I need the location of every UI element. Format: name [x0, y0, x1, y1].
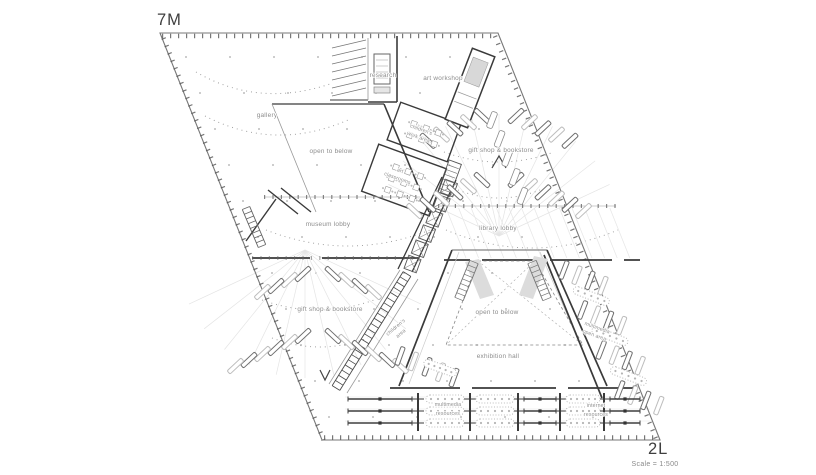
room-label-library-lobby: library lobby	[479, 225, 517, 232]
floor-plan-page: 7M 2L Scale = 1:500 research art worksho…	[0, 0, 816, 475]
room-label-art-classrooms-1: art	[396, 167, 405, 175]
room-label-exhibition-hall: exhibition hall	[477, 353, 519, 360]
room-label-internet-resources-2: resources	[584, 412, 608, 418]
room-label-open-to-below-upper: open to below	[309, 148, 352, 155]
scale-label: Scale = 1:500	[632, 461, 679, 468]
room-label-art-workshop: art workshop	[423, 75, 463, 82]
stair-top-left-icon	[332, 38, 368, 100]
room-label-open-to-below-center: open to below	[475, 309, 518, 316]
room-label-gallery: gallery	[257, 112, 278, 119]
floor-plan-drawing: 7M 2L Scale = 1:500 research art worksho…	[0, 0, 816, 475]
right-edge-desks	[486, 111, 528, 205]
room-label-multimedia-resources-2: resources	[436, 411, 460, 417]
void-escalators-icon	[455, 256, 551, 301]
v-mark-icon	[320, 370, 330, 380]
room-label-museum-lobby: museum lobby	[306, 221, 351, 228]
floor-label-top: 7M	[157, 11, 182, 29]
room-label-research: research	[370, 72, 397, 79]
bottom-resource-strip	[348, 358, 640, 431]
room-label-gift-shop-right: gift shop & bookstore	[468, 147, 533, 154]
art-workshop-room	[445, 48, 495, 128]
building-outline	[160, 33, 660, 440]
room-label-internet-resources-1: internet	[587, 403, 606, 409]
left-edge-escalator-icon	[242, 206, 265, 247]
floor-label-bottom: 2L	[648, 440, 668, 458]
room-label-gift-shop-left: gift shop & bookstore	[297, 306, 362, 313]
room-label-multimedia-resources-1: multimedia	[435, 402, 462, 408]
